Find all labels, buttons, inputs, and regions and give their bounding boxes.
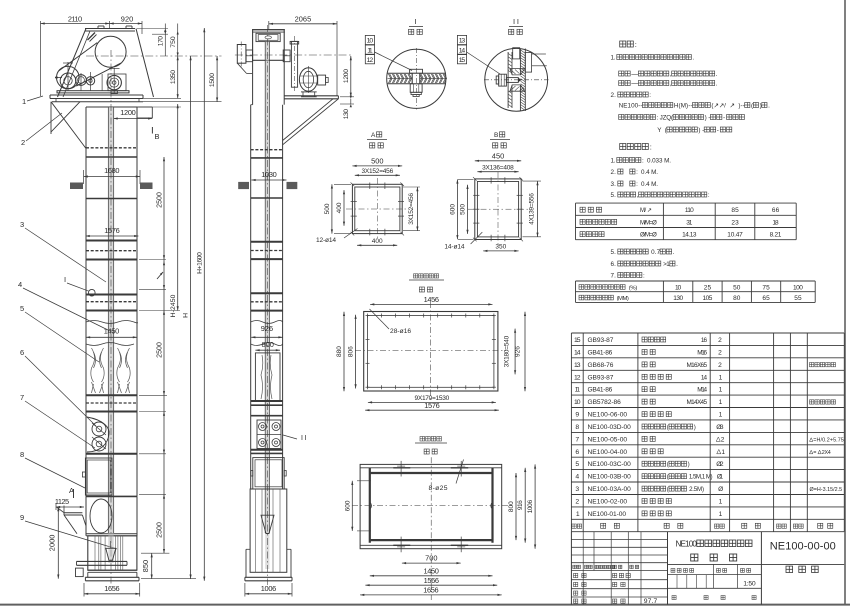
svg-text:7.: 7. [611, 273, 618, 280]
svg-text:10: 10 [675, 284, 682, 291]
svg-text:400: 400 [372, 238, 383, 245]
svg-text:15: 15 [574, 337, 581, 344]
svg-text:Ø3: Ø3 [716, 424, 724, 431]
svg-text:3X180=540: 3X180=540 [504, 335, 511, 367]
svg-text:1200: 1200 [120, 108, 135, 117]
svg-text:3: 3 [20, 220, 24, 229]
svg-text:880: 880 [336, 346, 343, 357]
svg-text:850: 850 [141, 560, 150, 572]
svg-text:4: 4 [575, 474, 579, 481]
svg-text:B: B [155, 132, 160, 141]
svg-text:4: 4 [18, 280, 22, 289]
svg-text:): ) [760, 103, 762, 110]
svg-text:1: 1 [719, 387, 723, 394]
svg-text:11: 11 [367, 47, 373, 54]
svg-text:11: 11 [575, 387, 581, 394]
svg-text:.: . [716, 81, 718, 88]
svg-text:15: 15 [459, 57, 466, 64]
svg-text:85: 85 [731, 207, 739, 214]
svg-text:18: 18 [772, 219, 779, 226]
svg-text:916: 916 [517, 500, 524, 510]
svg-text:NE100-04-00: NE100-04-00 [588, 449, 628, 456]
svg-text:.: . [673, 249, 675, 256]
svg-text:926: 926 [515, 346, 522, 357]
svg-text:110: 110 [685, 207, 694, 214]
svg-text:H: H [183, 313, 190, 318]
svg-text:170: 170 [158, 36, 165, 47]
svg-text:8: 8 [20, 450, 24, 459]
svg-text:65: 65 [762, 295, 770, 302]
svg-text:1200: 1200 [343, 69, 350, 83]
svg-text:A: A [371, 132, 377, 139]
svg-text:25: 25 [704, 284, 712, 291]
svg-text:130: 130 [343, 109, 350, 120]
svg-text:1006: 1006 [261, 584, 276, 593]
svg-text:.: . [768, 103, 770, 110]
svg-text:1.: 1. [611, 55, 617, 62]
svg-text:II: II [301, 435, 307, 442]
svg-text:1: 1 [719, 374, 723, 381]
svg-text:1566: 1566 [424, 576, 439, 585]
svg-text:NE100-06-00: NE100-06-00 [588, 412, 628, 419]
svg-text:1: 1 [719, 511, 723, 518]
svg-text:1456: 1456 [424, 295, 439, 304]
svg-text:I: I [64, 275, 66, 284]
svg-text:2: 2 [575, 499, 579, 506]
svg-text:1656: 1656 [423, 585, 438, 594]
svg-text:8.21: 8.21 [770, 232, 782, 239]
svg-text:1680: 1680 [104, 166, 119, 175]
svg-text:: 0.4 M.: : 0.4 M. [636, 169, 658, 176]
svg-text:H(M)--: H(M)-- [674, 103, 693, 110]
svg-text:800: 800 [508, 501, 515, 512]
svg-text:(MM): (MM) [614, 296, 628, 302]
svg-text:3X152=456: 3X152=456 [362, 168, 394, 175]
svg-text:100: 100 [793, 284, 803, 291]
svg-text:NE100: NE100 [676, 540, 698, 549]
svg-text:2110: 2110 [68, 14, 82, 23]
svg-text:: JZQ(: : JZQ( [657, 115, 674, 122]
svg-text:75: 75 [762, 284, 770, 291]
svg-text:1.5M,1 M): 1.5M,1 M) [688, 474, 713, 481]
svg-text:5: 5 [20, 304, 24, 313]
svg-text:1450: 1450 [424, 566, 439, 575]
svg-text:31: 31 [686, 219, 693, 226]
svg-text::: : [650, 143, 652, 152]
svg-text:Y (: Y ( [657, 127, 667, 134]
svg-text:1: 1 [719, 399, 723, 406]
svg-text:2.5M): 2.5M) [688, 486, 704, 493]
svg-text:1: 1 [576, 511, 580, 518]
svg-text:(↗↗/ ↗ )--: (↗↗/ ↗ )-- [711, 103, 744, 110]
svg-text:GB68-76: GB68-76 [588, 362, 614, 369]
svg-text:80: 80 [733, 295, 741, 302]
svg-text:97.7: 97.7 [644, 598, 658, 605]
svg-text:NE100-03C-00: NE100-03C-00 [588, 461, 632, 468]
svg-text:28-ø16: 28-ø16 [390, 328, 411, 335]
svg-text:.: . [716, 71, 718, 78]
svg-text:13: 13 [574, 362, 581, 369]
svg-text:II: II [513, 17, 519, 26]
svg-text:1576: 1576 [424, 401, 439, 410]
svg-text:): ) [688, 461, 690, 468]
svg-text:Ø/M=Ø: Ø/M=Ø [640, 233, 657, 239]
svg-text:10: 10 [574, 399, 581, 406]
svg-text:1125: 1125 [55, 497, 69, 506]
svg-text:66: 66 [772, 207, 780, 214]
svg-text:2X4: 2X4 [822, 450, 831, 456]
svg-text:1.: 1. [611, 158, 617, 165]
svg-text:NE100-01-00: NE100-01-00 [588, 511, 627, 518]
svg-text:M14: M14 [697, 387, 707, 394]
svg-text::: : [708, 192, 710, 199]
svg-text:1: 1 [22, 97, 26, 106]
svg-text:7: 7 [20, 393, 24, 402]
svg-text:5.: 5. [611, 249, 618, 256]
svg-text:: 0.4 M.: : 0.4 M. [636, 181, 658, 188]
svg-text:700: 700 [425, 554, 437, 563]
svg-text:2.: 2. [611, 169, 618, 176]
svg-text:NE100-02-00: NE100-02-00 [588, 499, 628, 506]
svg-text:12: 12 [574, 374, 581, 381]
svg-text:1030: 1030 [261, 170, 276, 179]
svg-text:14: 14 [701, 374, 708, 381]
svg-text:NE100-03A-00: NE100-03A-00 [588, 486, 632, 493]
svg-text:GB5782-86: GB5782-86 [588, 399, 622, 406]
svg-text:14: 14 [459, 47, 466, 54]
svg-text:12-ø14: 12-ø14 [316, 237, 336, 244]
svg-text:2.: 2. [611, 92, 618, 99]
svg-text:H+1600: H+1600 [196, 252, 203, 274]
svg-text:Ø2: Ø2 [716, 461, 724, 468]
svg-text:Ø: Ø [718, 486, 723, 493]
svg-text:500: 500 [324, 203, 331, 214]
svg-text:M16X65: M16X65 [687, 362, 708, 369]
svg-text:600: 600 [344, 500, 351, 511]
svg-text:3.: 3. [611, 181, 618, 188]
svg-text:23: 23 [731, 219, 739, 226]
svg-text:NE100--: NE100-- [619, 103, 643, 110]
svg-text:1350: 1350 [170, 70, 177, 84]
svg-text:-: - [717, 127, 719, 134]
svg-text:3X136=408: 3X136=408 [482, 165, 514, 172]
svg-text:1450: 1450 [104, 327, 119, 336]
svg-text:>1: >1 [662, 261, 670, 268]
svg-text:(%): (%) [626, 285, 637, 291]
svg-text:1576: 1576 [104, 226, 119, 235]
svg-text:GB93-87: GB93-87 [588, 337, 614, 344]
svg-text:NE100-03B-00: NE100-03B-00 [588, 474, 632, 481]
svg-text:806: 806 [348, 346, 355, 357]
svg-text:10.47: 10.47 [727, 232, 743, 239]
svg-text:2500: 2500 [157, 342, 164, 358]
svg-text:2065: 2065 [295, 15, 312, 24]
svg-text:7: 7 [575, 436, 579, 443]
svg-text:M/M=Ø: M/M=Ø [640, 220, 657, 226]
svg-text:2: 2 [718, 349, 722, 356]
svg-text::: : [649, 92, 651, 99]
svg-text:105: 105 [703, 295, 713, 302]
svg-text:8-ø25: 8-ø25 [429, 485, 448, 492]
svg-text::: : [635, 40, 637, 49]
svg-text:5: 5 [575, 461, 579, 468]
svg-text:450: 450 [492, 152, 504, 161]
svg-text:2: 2 [21, 138, 25, 147]
svg-text:M/ ↗: M/ ↗ [640, 208, 652, 214]
svg-text:2000: 2000 [48, 535, 57, 552]
svg-text:1500: 1500 [209, 73, 216, 87]
svg-text:.: . [676, 261, 678, 268]
svg-text:920: 920 [121, 14, 133, 23]
svg-text:5.: 5. [611, 192, 618, 199]
svg-text:500: 500 [460, 204, 467, 215]
svg-text:1006: 1006 [527, 500, 534, 514]
svg-text:16: 16 [701, 337, 708, 344]
svg-text:9: 9 [575, 412, 579, 419]
svg-text:Ø=H-3.15/2.5: Ø=H-3.15/2.5 [810, 487, 843, 493]
svg-text:10: 10 [367, 38, 374, 45]
svg-text:13: 13 [459, 38, 466, 45]
svg-text:1: 1 [719, 412, 723, 419]
svg-text:3X152=456: 3X152=456 [408, 193, 415, 225]
svg-text:1656: 1656 [104, 584, 119, 593]
svg-text:55: 55 [794, 295, 802, 302]
svg-text:14-ø14: 14-ø14 [444, 243, 464, 250]
svg-text:): ) [694, 424, 696, 431]
svg-text:: 0.033 M.: : 0.033 M. [642, 158, 671, 165]
svg-text:8: 8 [575, 424, 579, 431]
svg-text:)-: )- [705, 115, 711, 122]
svg-text:NE100-03D-00: NE100-03D-00 [588, 424, 632, 431]
svg-text:500: 500 [371, 156, 383, 165]
svg-text:M14X45: M14X45 [687, 399, 708, 406]
svg-text:NE100-05-00: NE100-05-00 [588, 436, 628, 443]
svg-text:750: 750 [170, 36, 177, 48]
svg-text:I: I [415, 17, 417, 26]
svg-text:H-2450: H-2450 [170, 294, 177, 317]
svg-text:GB41-86: GB41-86 [588, 387, 613, 394]
svg-text:=: = [813, 450, 818, 456]
svg-text:1: 1 [719, 499, 723, 506]
svg-text:926: 926 [261, 324, 273, 333]
svg-text:12: 12 [367, 57, 374, 64]
svg-text:14.13: 14.13 [682, 232, 697, 239]
svg-text:2500: 2500 [157, 192, 164, 208]
svg-text:2: 2 [718, 337, 722, 344]
svg-text:6: 6 [575, 449, 579, 456]
svg-text:1: 1 [721, 449, 725, 456]
svg-text:——: —— [631, 71, 639, 78]
svg-text:400: 400 [336, 202, 343, 213]
svg-text:600: 600 [449, 204, 456, 215]
svg-text:4X139=556: 4X139=556 [528, 193, 535, 225]
svg-text:NE100-00-00: NE100-00-00 [770, 541, 836, 553]
svg-text:130: 130 [673, 295, 683, 302]
svg-text:=H/0.2+5.75: =H/0.2+5.75 [813, 437, 844, 443]
svg-text:1:50: 1:50 [743, 580, 756, 587]
svg-text:3: 3 [575, 486, 579, 493]
svg-text:2: 2 [721, 436, 725, 443]
svg-text::: : [643, 273, 645, 280]
svg-text:GB93-87: GB93-87 [588, 374, 614, 381]
svg-text:50: 50 [733, 284, 741, 291]
svg-text:6: 6 [20, 348, 24, 357]
svg-text:Ø1: Ø1 [717, 474, 724, 481]
svg-text:2: 2 [718, 362, 722, 369]
svg-text:——: —— [631, 81, 639, 88]
svg-text:)-: )- [698, 127, 704, 134]
svg-text:GB41-86: GB41-86 [588, 349, 613, 356]
svg-text:350: 350 [495, 244, 506, 251]
svg-text:M16: M16 [697, 349, 707, 356]
svg-text:800: 800 [262, 340, 274, 349]
svg-text:14: 14 [574, 349, 581, 356]
svg-text:6.: 6. [611, 261, 618, 268]
svg-text:2500: 2500 [157, 522, 164, 538]
svg-text:-: - [723, 115, 725, 122]
svg-text:.: . [692, 55, 694, 62]
svg-text:9: 9 [20, 513, 24, 522]
svg-text:0.7: 0.7 [649, 249, 660, 256]
